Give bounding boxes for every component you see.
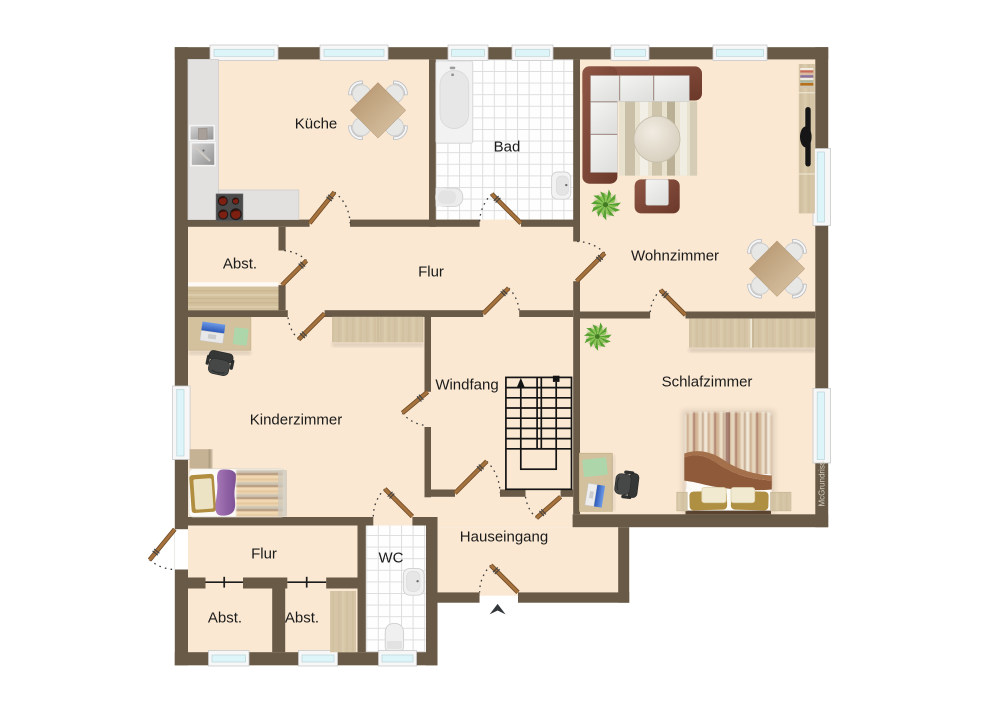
svg-text:Kinderzimmer: Kinderzimmer [250, 412, 343, 429]
svg-text:McGrundriss: McGrundriss [818, 461, 827, 506]
svg-text:Küche: Küche [295, 116, 338, 133]
svg-text:Flur: Flur [251, 546, 277, 563]
svg-text:Schlafzimmer: Schlafzimmer [662, 374, 753, 391]
svg-text:Abst.: Abst. [208, 610, 242, 627]
svg-text:Wohnzimmer: Wohnzimmer [631, 248, 719, 265]
svg-text:Hauseingang: Hauseingang [460, 529, 548, 546]
svg-text:Abst.: Abst. [285, 610, 319, 627]
svg-text:Bad: Bad [494, 139, 521, 156]
svg-text:WC: WC [379, 550, 404, 567]
svg-text:Windfang: Windfang [435, 377, 498, 394]
svg-text:Flur: Flur [418, 264, 444, 281]
svg-text:Abst.: Abst. [223, 256, 257, 273]
